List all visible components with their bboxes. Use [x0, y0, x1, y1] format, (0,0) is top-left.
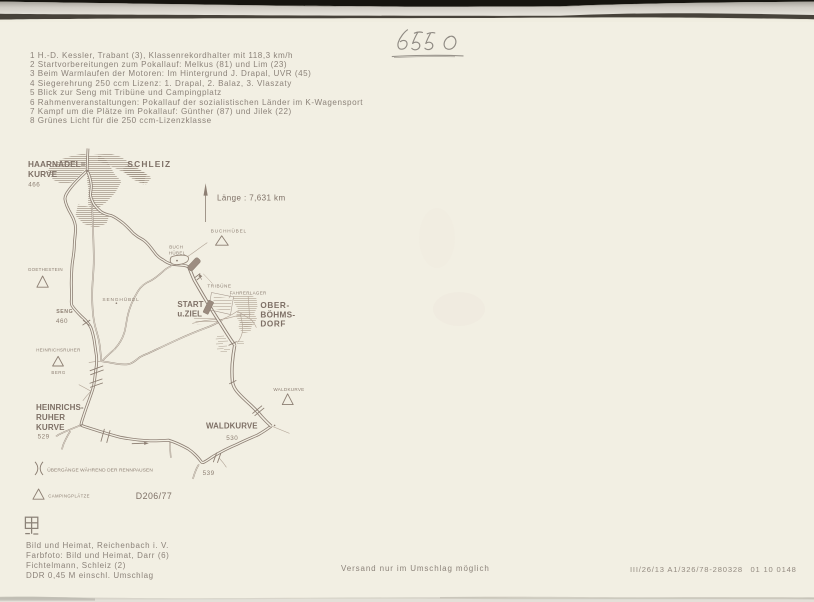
svg-text:Länge : 7,631 km: Länge : 7,631 km — [217, 194, 286, 203]
svg-text:HEINRICHSRUHER: HEINRICHSRUHER — [36, 347, 80, 352]
svg-text:460: 460 — [56, 318, 68, 325]
svg-text:SCHLEIZ: SCHLEIZ — [127, 159, 171, 169]
svg-text:539: 539 — [203, 470, 215, 477]
svg-text:D206/77: D206/77 — [136, 491, 172, 501]
svg-text:DORF: DORF — [260, 320, 286, 329]
svg-text:ÜBERGÄNGE WÄHREND DER RENNPAUS: ÜBERGÄNGE WÄHREND DER RENNPAUSEN — [47, 467, 153, 474]
svg-text:HEINRICHS-: HEINRICHS- — [36, 403, 84, 412]
svg-text:START: START — [177, 300, 203, 309]
svg-text:BUCHHÜBEL: BUCHHÜBEL — [211, 227, 247, 233]
svg-text:SENG: SENG — [56, 309, 73, 315]
svg-text:GOETHESTEIN: GOETHESTEIN — [28, 267, 63, 272]
svg-text:u.ZIEL: u.ZIEL — [177, 310, 202, 319]
svg-text:KURVE: KURVE — [28, 170, 58, 179]
svg-text:466: 466 — [28, 181, 40, 188]
svg-text:CAMPINGPLÄTZE: CAMPINGPLÄTZE — [48, 493, 90, 498]
svg-text:KURVE: KURVE — [36, 423, 65, 432]
svg-text:WALDKURVE: WALDKURVE — [206, 422, 258, 431]
svg-text:RUHER: RUHER — [36, 413, 65, 422]
svg-text:SENGHÜBEL: SENGHÜBEL — [102, 296, 139, 303]
svg-text:OBER-: OBER- — [260, 301, 289, 310]
svg-text:BÖHMS-: BÖHMS- — [260, 310, 295, 320]
svg-text:529: 529 — [38, 434, 50, 441]
svg-text:BERG: BERG — [51, 370, 66, 375]
svg-text:HAARNADEL=: HAARNADEL= — [28, 160, 86, 169]
svg-text:TRIBÜNE: TRIBÜNE — [207, 283, 231, 289]
svg-text:BUCH: BUCH — [169, 244, 183, 249]
svg-text:530: 530 — [226, 435, 238, 442]
svg-text:FAHRERLAGER: FAHRERLAGER — [230, 290, 267, 295]
svg-text:HÜBEL: HÜBEL — [169, 250, 186, 256]
svg-text:WALDKURVE: WALDKURVE — [273, 387, 304, 392]
